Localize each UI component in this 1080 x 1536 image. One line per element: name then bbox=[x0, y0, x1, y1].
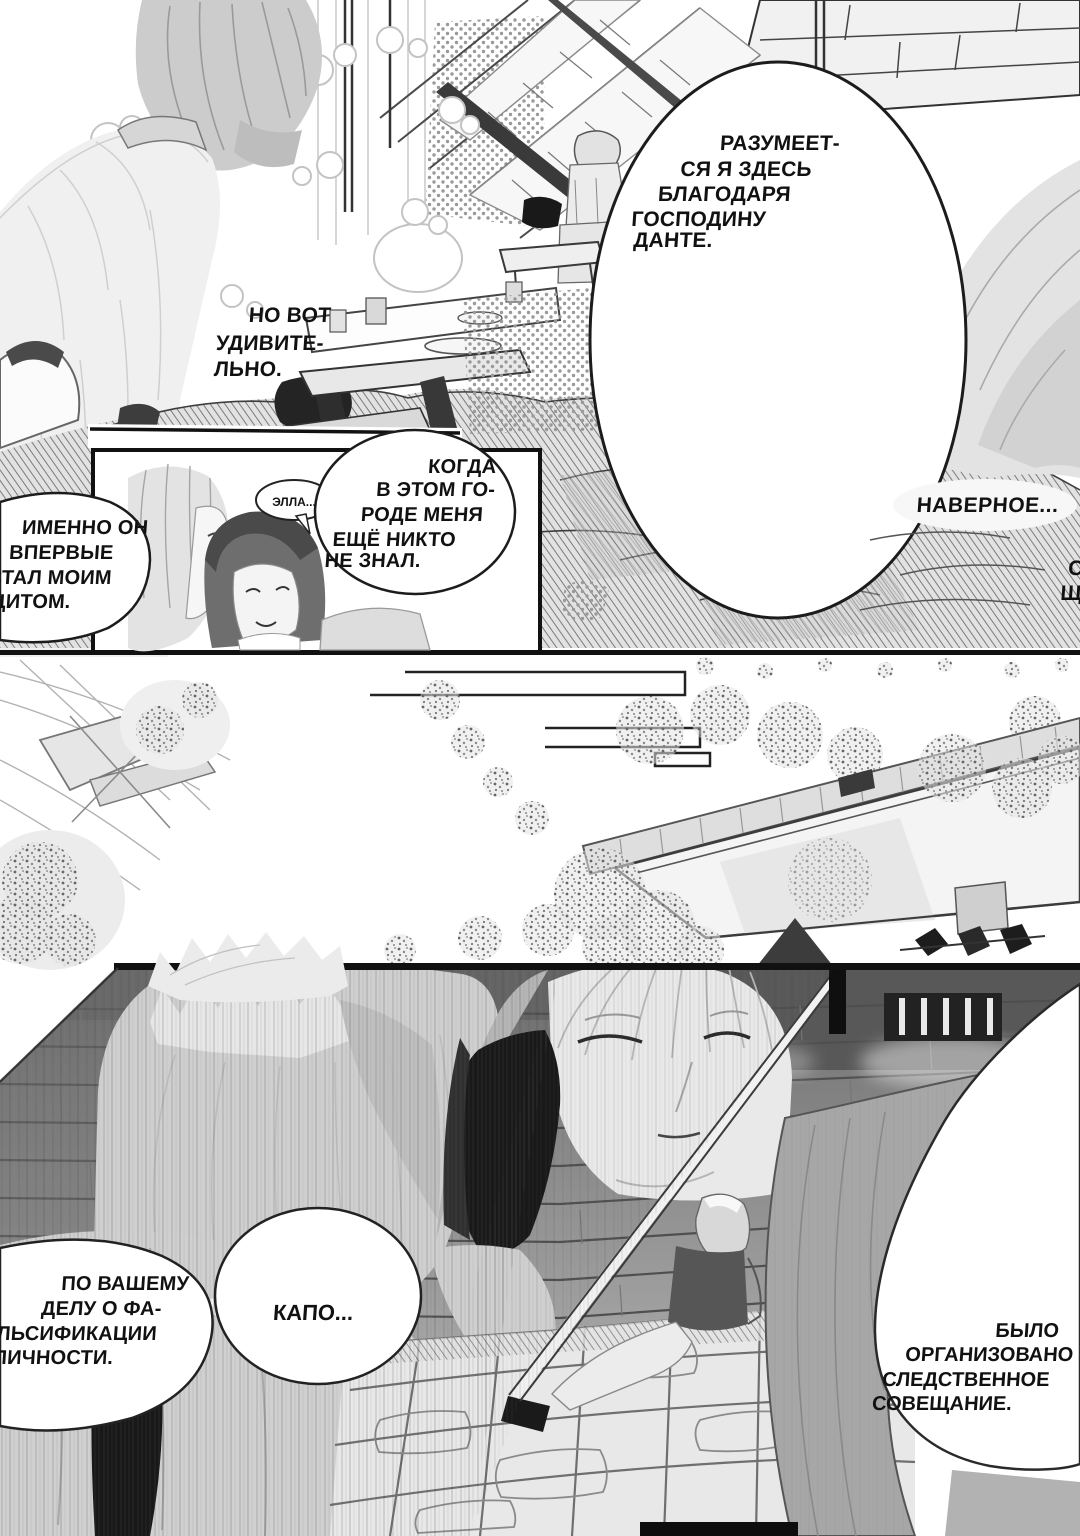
svg-text:НО ВОТ: НО ВОТ bbox=[248, 304, 332, 327]
svg-text:ЕЩЁ НИКТО: ЕЩЁ НИКТО bbox=[332, 528, 457, 551]
svg-text:ПО ВАШЕМУ: ПО ВАШЕМУ bbox=[61, 1273, 191, 1295]
svg-text:УДИВИТЕ-: УДИВИТЕ- bbox=[215, 332, 324, 355]
svg-text:НАВЕРНОЕ...: НАВЕРНОЕ... bbox=[916, 494, 1060, 517]
svg-text:ЛИЧНОСТИ.: ЛИЧНОСТИ. bbox=[0, 1347, 114, 1369]
svg-text:КАПО...: КАПО... bbox=[272, 1300, 354, 1325]
svg-text:ЩИТОМ.: ЩИТОМ. bbox=[0, 591, 71, 613]
svg-text:СТАЛ МОИМ: СТАЛ МОИМ bbox=[0, 567, 112, 589]
svg-text:В ЭТОМ ГО-: В ЭТОМ ГО- bbox=[375, 479, 496, 501]
svg-text:ИМЕННО ОН: ИМЕННО ОН bbox=[21, 517, 149, 539]
svg-text:КОГДА: КОГДА bbox=[427, 456, 497, 478]
svg-text:НЕ ЗНАЛ.: НЕ ЗНАЛ. bbox=[324, 550, 422, 572]
svg-text:ВПЕРВЫЕ: ВПЕРВЫЕ bbox=[8, 542, 114, 564]
svg-text:ЛЬСИФИКАЦИИ: ЛЬСИФИКАЦИИ bbox=[0, 1323, 158, 1345]
svg-text:ЭЛЛА...: ЭЛЛА... bbox=[272, 495, 316, 509]
svg-text:РОДЕ МЕНЯ: РОДЕ МЕНЯ bbox=[360, 504, 484, 526]
svg-text:СЛЕДСТВЕННОЕ: СЛЕДСТВЕННОЕ bbox=[881, 1369, 1050, 1391]
svg-text:БЫЛО: БЫЛО bbox=[995, 1320, 1060, 1342]
svg-text:СОВЕЩАНИЕ.: СОВЕЩАНИЕ. bbox=[871, 1393, 1012, 1415]
svg-text:Щ: Щ bbox=[1060, 582, 1080, 605]
svg-text:ЛЬНО.: ЛЬНО. bbox=[213, 358, 283, 381]
svg-text:ДАНТЕ.: ДАНТЕ. bbox=[633, 229, 714, 252]
svg-text:ОРГАНИЗОВАНО: ОРГАНИЗОВАНО bbox=[905, 1344, 1074, 1366]
svg-text:СЯ Я ЗДЕСЬ: СЯ Я ЗДЕСЬ bbox=[680, 158, 813, 181]
svg-text:С: С bbox=[1067, 557, 1080, 580]
svg-text:РАЗУМЕЕТ-: РАЗУМЕЕТ- bbox=[719, 132, 840, 155]
svg-text:БЛАГОДАРЯ: БЛАГОДАРЯ bbox=[657, 183, 791, 206]
svg-text:ГОСПОДИНУ: ГОСПОДИНУ bbox=[631, 208, 768, 231]
svg-text:ДЕЛУ О ФА-: ДЕЛУ О ФА- bbox=[41, 1298, 163, 1320]
